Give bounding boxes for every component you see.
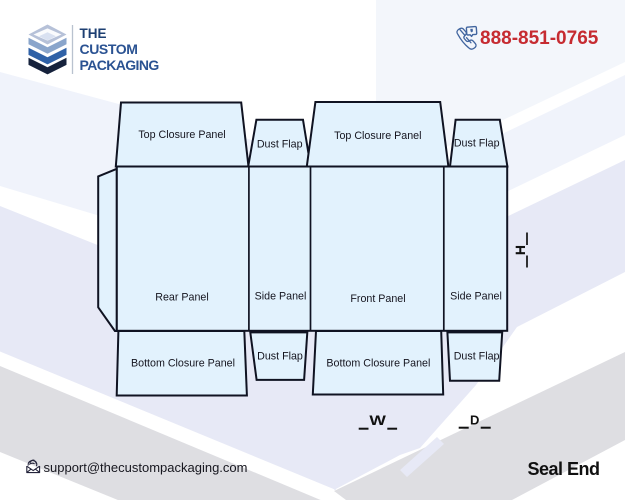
svg-text:D: D [470, 412, 479, 427]
svg-text:Side Panel: Side Panel [450, 291, 502, 303]
svg-text:Side Panel: Side Panel [255, 291, 307, 303]
svg-text:Rear Panel: Rear Panel [155, 292, 208, 304]
svg-text:Top Closure Panel: Top Closure Panel [334, 130, 421, 142]
svg-text:PACKAGING: PACKAGING [80, 57, 160, 73]
svg-text:CUSTOM: CUSTOM [80, 41, 138, 57]
svg-text:Dust Flap: Dust Flap [454, 351, 500, 363]
svg-text:Dust Flap: Dust Flap [257, 351, 303, 363]
svg-text:888-851-0765: 888-851-0765 [480, 28, 599, 49]
svg-text:W: W [369, 412, 386, 428]
svg-text:Top Closure Panel: Top Closure Panel [138, 129, 225, 141]
svg-text:support@thecustompackaging.com: support@thecustompackaging.com [44, 460, 248, 475]
svg-text:Dust Flap: Dust Flap [454, 138, 500, 150]
svg-text:Dust Flap: Dust Flap [257, 139, 303, 151]
svg-text:Bottom Closure Panel: Bottom Closure Panel [326, 358, 430, 370]
svg-text:Bottom Closure Panel: Bottom Closure Panel [131, 358, 235, 370]
svg-text:Seal End: Seal End [528, 459, 600, 479]
svg-text:THE: THE [80, 26, 107, 41]
svg-text:Front Panel: Front Panel [350, 293, 405, 305]
